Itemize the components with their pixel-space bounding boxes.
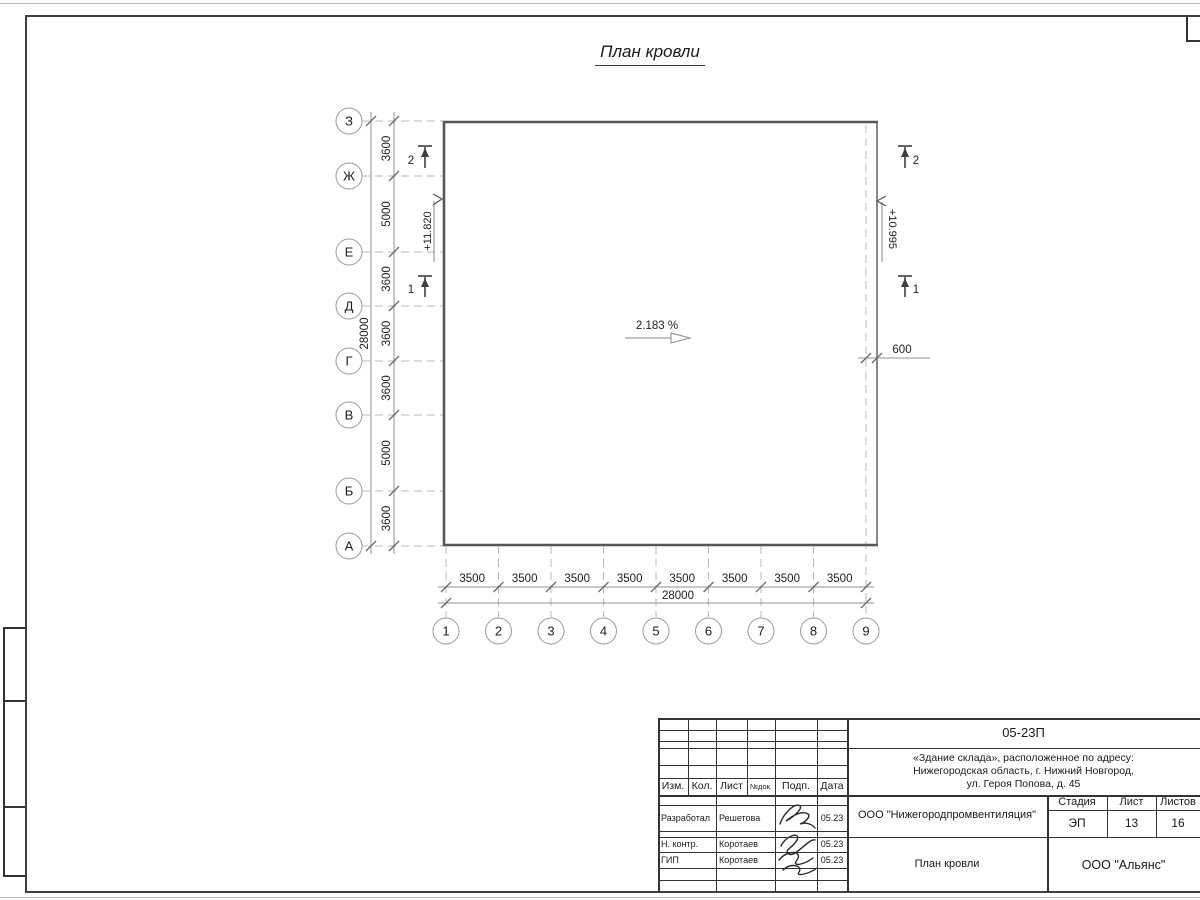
dim-label: 3600 <box>381 375 393 401</box>
tb-company: ООО "Альянс" <box>1047 837 1200 893</box>
dim-label: 5000 <box>381 201 393 227</box>
col-axis-label: 8 <box>810 624 817 639</box>
col-dim-labels: 3500 3500 3500 3500 3500 3500 3500 3500 … <box>459 344 911 602</box>
signature-korotaev <box>773 830 821 878</box>
tb-name: Коротаев <box>716 837 775 852</box>
tb-col-izm: Изм. <box>658 778 688 795</box>
slope-label: 2.183 % <box>636 320 678 332</box>
dim-label: 3500 <box>669 573 695 585</box>
row-axis-label: Е <box>345 245 354 260</box>
tb-role: Н. контр. <box>658 837 716 852</box>
project-line: ул. Героя Попова, д. 45 <box>967 778 1081 791</box>
section-mark-arrows <box>421 148 909 287</box>
col-axis-label: 9 <box>862 624 869 639</box>
dim-label: 5000 <box>381 440 393 466</box>
tb-org: ООО "Нижегородпромвентиляция" <box>847 795 1047 837</box>
col-axis-label: 2 <box>495 624 502 639</box>
tb-doc-number: 05-23П <box>847 718 1200 748</box>
row-axis-label: В <box>345 408 354 423</box>
section-number: 1 <box>408 284 414 296</box>
tb-col-podp: Подп. <box>775 778 817 795</box>
row-axis-label: Г <box>345 354 352 369</box>
tb-project-name: «Здание склада», расположенное по адресу… <box>847 748 1200 795</box>
section-number: 2 <box>913 155 919 167</box>
col-axis-label: 7 <box>757 624 764 639</box>
tb-sheets-value: 16 <box>1156 810 1200 837</box>
dim-label: 3600 <box>381 506 393 532</box>
margin-stamp-h3 <box>3 806 25 808</box>
tb-sheet-title: План кровли <box>847 837 1047 893</box>
dim-label: 3500 <box>827 573 853 585</box>
dim-label: 3500 <box>722 573 748 585</box>
tb-name: Решетова <box>716 805 775 831</box>
elevation-value: +11.820 <box>422 211 434 250</box>
dim-label: 3500 <box>512 573 538 585</box>
tb-role: ГИП <box>658 852 716 868</box>
signature-reshetova <box>776 798 818 834</box>
row-axis-label: Ж <box>343 169 355 184</box>
elevation-mark-right: +10.995 <box>877 196 898 262</box>
col-axis-label: 4 <box>600 624 607 639</box>
roof-outline <box>443 121 878 546</box>
tb-date: 05.23 <box>817 805 847 831</box>
dim-label: 3600 <box>381 136 393 162</box>
col-axis-label: 6 <box>705 624 712 639</box>
tb-role: Разработал <box>658 805 716 831</box>
tb-hline <box>658 880 847 881</box>
tb-stage-value: ЭП <box>1047 810 1107 837</box>
slope-arrow-head <box>671 333 690 343</box>
row-axis-label: Б <box>345 484 354 499</box>
row-dim-labels: 3600 5000 3600 3600 3600 5000 3600 28000 <box>359 136 393 532</box>
tb-sheet-value: 13 <box>1107 810 1156 837</box>
edge-offset-label: 600 <box>892 344 911 356</box>
section-number: 1 <box>913 284 919 296</box>
tb-hline <box>658 765 847 766</box>
roof-plan-drawing: З Ж Е Д Г В Б А 1 2 3 4 5 6 7 8 9 <box>0 0 1200 670</box>
tb-col-data: Дата <box>817 778 847 795</box>
col-axis-label: 1 <box>442 624 449 639</box>
tb-stage-label: Стадия <box>1047 795 1107 810</box>
dim-label: 3600 <box>381 266 393 292</box>
row-axis-label: Д <box>345 299 354 314</box>
tb-hline <box>658 741 847 742</box>
row-axis-labels: З Ж Е Д Г В Б А <box>343 114 355 554</box>
dim-label: 3500 <box>459 573 485 585</box>
row-axis-label: А <box>345 539 354 554</box>
tb-date: 05.23 <box>817 852 847 868</box>
tb-hline <box>658 730 847 731</box>
dim-label: 3500 <box>774 573 800 585</box>
dimension-lines <box>371 112 930 603</box>
dim-label: 3600 <box>381 321 393 347</box>
tb-name: Коротаев <box>716 852 775 868</box>
project-line: «Здание склада», расположенное по адресу… <box>913 752 1134 765</box>
tb-col-ndoc: №док. <box>747 778 775 795</box>
margin-stamp-h2 <box>3 700 25 702</box>
margin-stamp-h4 <box>3 875 25 877</box>
col-axis-label: 3 <box>547 624 554 639</box>
col-axis-dashed-lines <box>446 125 866 617</box>
project-line: Нижегородская область, г. Нижний Новгоро… <box>913 765 1134 778</box>
section-number: 2 <box>408 155 414 167</box>
tb-date: 05.23 <box>817 837 847 852</box>
section-marks <box>418 146 912 297</box>
tb-col-list: Лист <box>716 778 747 795</box>
dim-label: 3500 <box>617 573 643 585</box>
slope-annotation: 2.183 % <box>625 320 690 343</box>
col-axis-label: 5 <box>652 624 659 639</box>
row-axis-label: З <box>345 114 353 129</box>
elevation-value: +10.995 <box>886 209 898 249</box>
tb-sheets-label: Листов <box>1156 795 1200 810</box>
dim-label: 3500 <box>564 573 590 585</box>
drawing-sheet: План кровли <box>0 0 1200 900</box>
row-axis-dashed-lines <box>362 121 444 546</box>
page-edge-bottom <box>0 897 1200 898</box>
tb-col-kol: Кол. <box>688 778 716 795</box>
tb-sheet-label: Лист <box>1107 795 1156 810</box>
total-dim-label: 28000 <box>662 590 694 602</box>
section-mark-numbers: 2 1 2 1 <box>408 155 919 296</box>
total-dim-label: 28000 <box>359 318 371 350</box>
